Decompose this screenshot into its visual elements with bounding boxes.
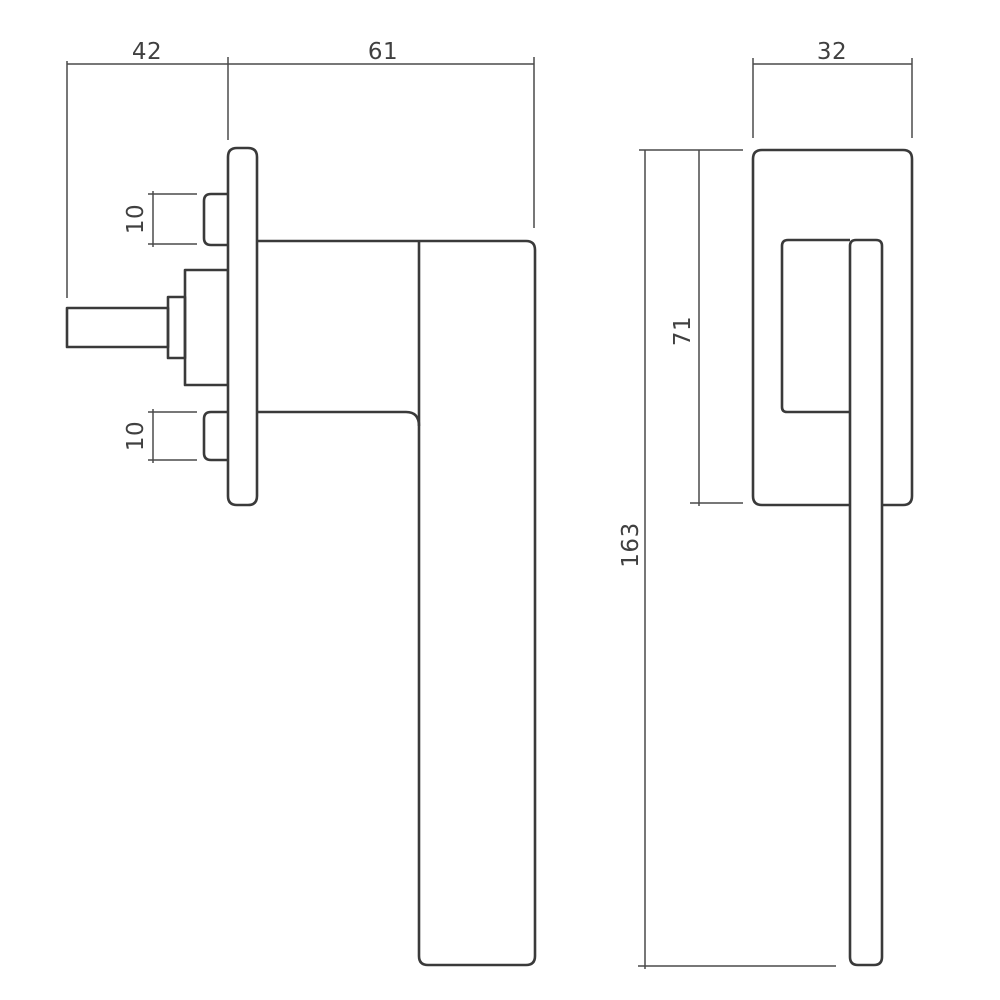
side-view: 42 61 10 10 [67,39,535,965]
dim-label-overall-height: 163 [618,522,644,567]
dim-label-rose-width: 32 [817,39,847,65]
technical-drawing-canvas: 42 61 10 10 32 71 163 [0,0,1000,1000]
spindle-collar-outline [168,297,185,358]
drawing-page: 42 61 10 10 32 71 163 [0,0,1000,1000]
dim-label-screw-boss-upper: 10 [123,204,149,234]
spindle-outline [67,308,168,347]
gearbox-outline [185,270,228,385]
dim-label-screw-boss-lower: 10 [123,421,149,451]
grip-front-outline [850,240,882,965]
dim-label-spindle-to-plate: 42 [132,39,162,65]
dim-label-rose-height: 71 [670,316,696,346]
backplate-side-outline [228,148,257,505]
screw-boss-top-outline [204,194,228,245]
dim-label-plate-to-grip: 61 [368,39,398,65]
neck-front-outline [782,240,850,412]
front-view: 32 71 163 [618,39,912,969]
rose-front-outline [753,150,912,505]
screw-boss-bottom-outline [204,412,228,460]
handle-side-outline [257,241,535,965]
neck-bottom-line [257,412,419,426]
